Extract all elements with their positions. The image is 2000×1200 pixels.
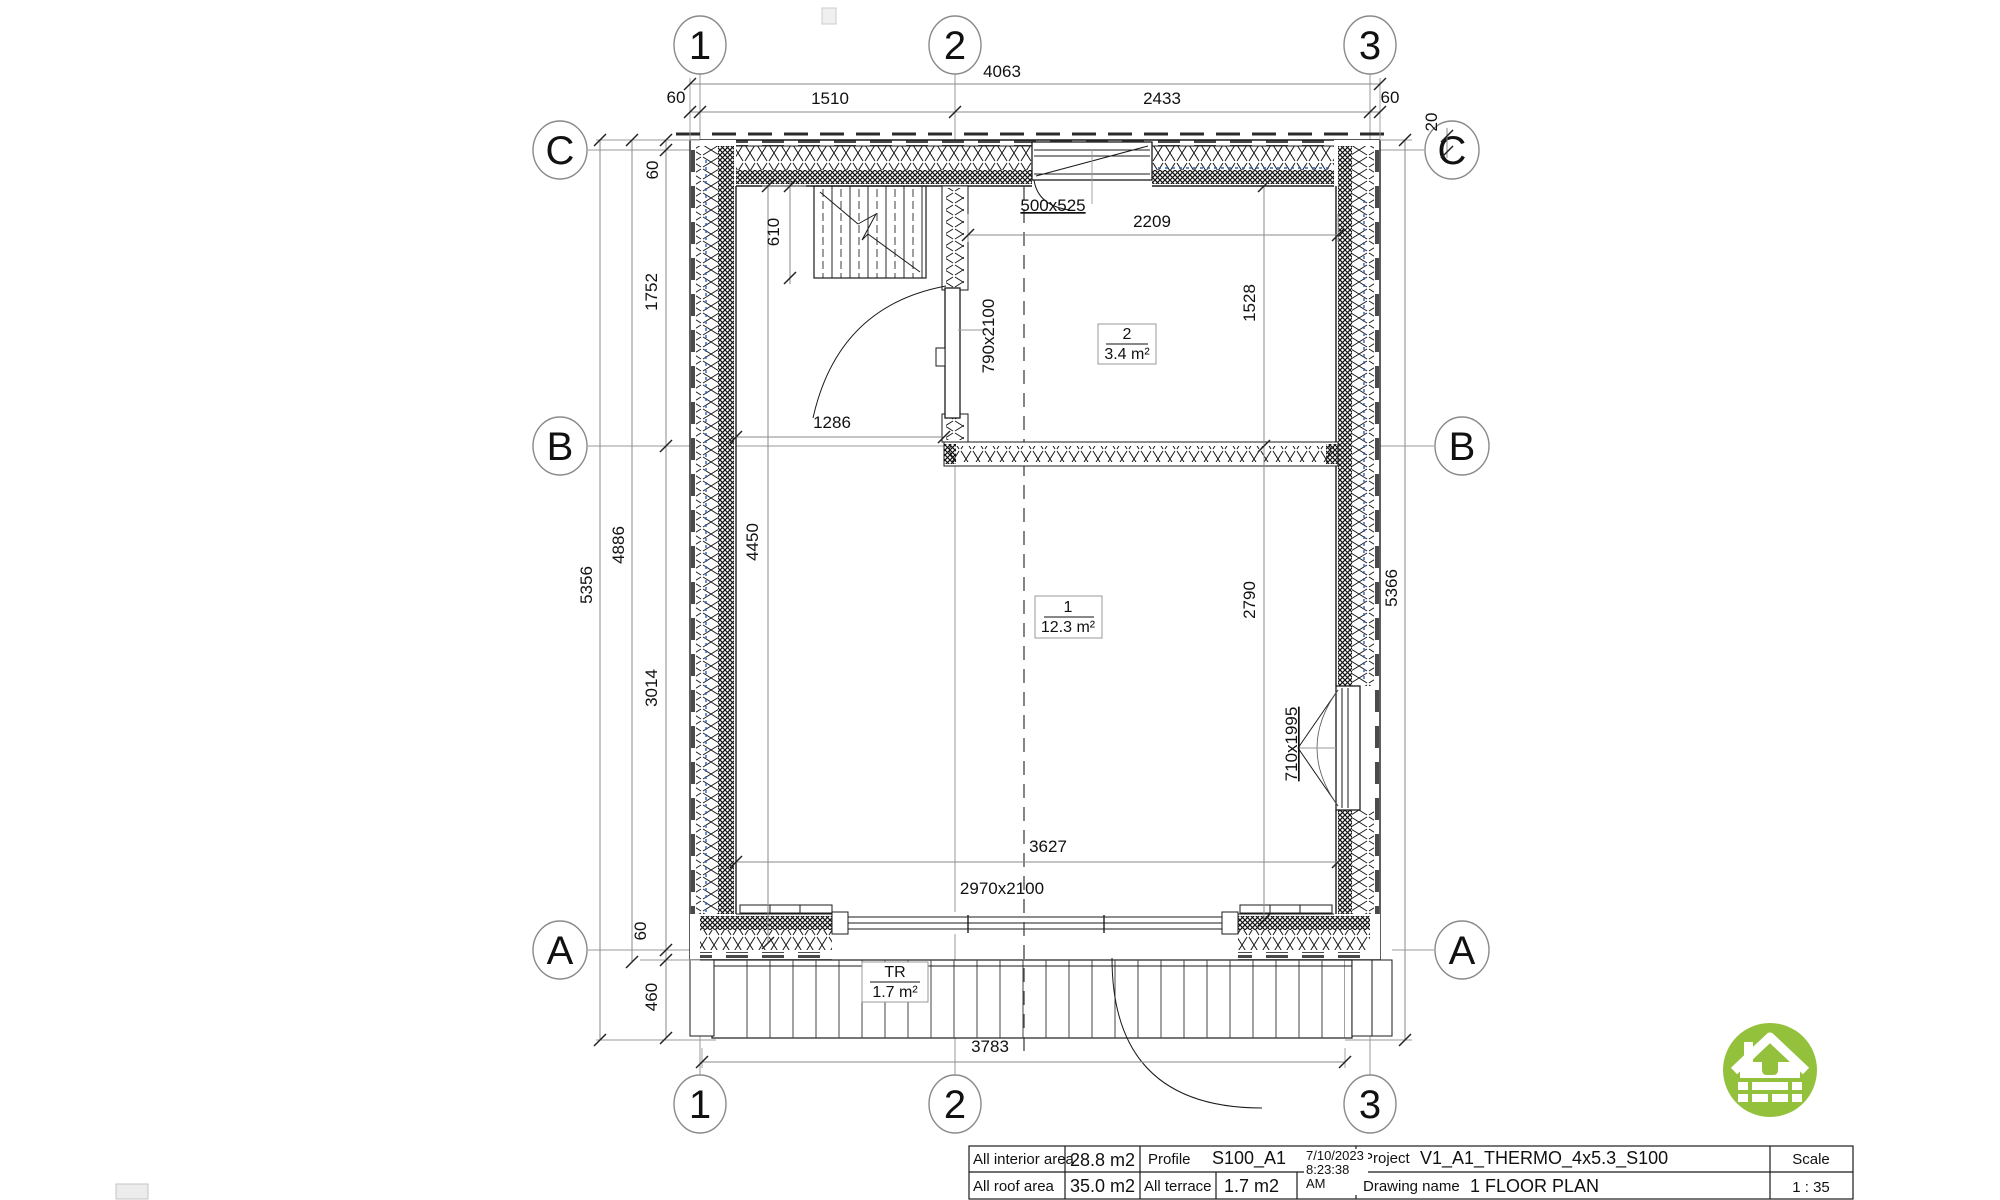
label-door-interior: 790x2100 — [979, 299, 998, 374]
grid-label: C — [1438, 129, 1467, 173]
dim-left-wall-height: 4886 — [609, 526, 628, 564]
grid-bubble-right-A: A — [1435, 921, 1489, 979]
dim-top-left-offset: 60 — [667, 88, 686, 107]
dim-top-span-1-2: 1510 — [811, 89, 849, 108]
grid-label: 3 — [1359, 1083, 1381, 1127]
terrace-deck — [690, 958, 1392, 1108]
title-interior-area-value: 28.8 m2 — [1070, 1150, 1135, 1170]
interior-door — [813, 286, 988, 418]
grid-bubble-top-2: 2 — [929, 16, 981, 74]
wall-left — [690, 140, 736, 960]
dim-terrace-width: 3783 — [971, 1037, 1009, 1056]
grid-bubble-bottom-2: 2 — [929, 1075, 981, 1133]
dim-top-span-2-3: 2433 — [1143, 89, 1181, 108]
terrace-post-left — [690, 960, 714, 1036]
title-profile-label: Profile — [1148, 1151, 1191, 1168]
stairs — [814, 186, 926, 278]
dim-room2-width: 2209 — [1133, 212, 1171, 231]
grid-bubble-bottom-3: 3 — [1344, 1075, 1396, 1133]
sliding-door — [832, 912, 1238, 934]
grid-label: A — [1449, 929, 1476, 973]
room-area: 3.4 m² — [1104, 346, 1150, 363]
dim-stair-width: 610 — [764, 218, 783, 246]
grid-bubble-left-A: A — [533, 921, 587, 979]
title-time: 8:23:38 — [1306, 1162, 1349, 1177]
dim-room2-height: 1528 — [1240, 284, 1259, 322]
window-right — [1298, 686, 1360, 810]
dim-top-right-offset: 60 — [1381, 88, 1400, 107]
grid-label: A — [547, 929, 574, 973]
grid-label: B — [547, 425, 574, 469]
title-scale-value: 1 : 35 — [1792, 1179, 1830, 1196]
grid-label: 2 — [944, 1083, 966, 1127]
title-drawing-name-value: 1 FLOOR PLAN — [1470, 1176, 1599, 1196]
grid-label: 3 — [1359, 24, 1381, 68]
interior-wall-horizontal — [944, 442, 1338, 466]
grid-label: B — [1449, 425, 1476, 469]
grid-bubble-left-C: C — [533, 121, 587, 179]
drawing-sheet: 1 2 3 1 2 3 C B — [0, 0, 2000, 1200]
title-date: 7/10/2023 — [1306, 1148, 1364, 1163]
label-window-top: 500x525 — [1020, 196, 1085, 215]
title-roof-area-label: All roof area — [973, 1178, 1055, 1195]
sheet-corner-mark — [116, 1184, 148, 1199]
title-terrace-value: 1.7 m2 — [1224, 1176, 1279, 1196]
wall-bottom — [690, 905, 1380, 960]
grid-bubble-top-1: 1 — [674, 16, 726, 74]
grid-bubble-top-3: 3 — [1344, 16, 1396, 74]
title-meridiem: AM — [1306, 1176, 1326, 1191]
dim-bottom-interior: 3627 — [1029, 837, 1067, 856]
room-area: 1.7 m² — [872, 984, 918, 1001]
room-area: 12.3 m² — [1041, 619, 1096, 636]
floor-plan-svg: 1 2 3 1 2 3 C B — [0, 0, 2000, 1200]
dim-top-overhang: 20 — [1422, 113, 1441, 132]
dim-left-c-to-b: 1752 — [642, 273, 661, 311]
title-profile-value: S100_A1 — [1212, 1148, 1286, 1169]
dim-left-b-to-a: 3014 — [642, 669, 661, 707]
title-roof-area-value: 35.0 m2 — [1070, 1176, 1135, 1196]
dim-terrace-depth: 460 — [642, 983, 661, 1011]
title-drawing-name-label: Drawing name — [1363, 1178, 1460, 1195]
grid-label: 1 — [689, 1083, 711, 1127]
dim-left-offset-top: 60 — [643, 161, 662, 180]
room-labels: 1 12.3 m² 2 3.4 m² TR 1.7 m² — [862, 324, 1156, 1002]
title-block: All interior area 28.8 m2 Profile S100_A… — [969, 1146, 1853, 1199]
dim-room1-height: 2790 — [1240, 581, 1259, 619]
title-project-value: V1_A1_THERMO_4x5.3_S100 — [1420, 1148, 1668, 1169]
grid-label: C — [546, 129, 575, 173]
grid-bubble-bottom-1: 1 — [674, 1075, 726, 1133]
grid-bubble-left-B: B — [533, 417, 587, 475]
dim-interior-height: 4450 — [743, 523, 762, 561]
label-door-sliding: 2970x2100 — [960, 879, 1044, 898]
company-logo — [1723, 1023, 1817, 1117]
dim-right-overall: 5366 — [1382, 569, 1401, 607]
title-interior-area-label: All interior area — [973, 1151, 1075, 1168]
sheet-top-mark — [822, 8, 836, 24]
room-number: TR — [884, 964, 905, 981]
dim-left-overall: 5356 — [577, 566, 596, 604]
label-window-right: 710x1995 — [1282, 707, 1301, 782]
room-number: 1 — [1064, 599, 1073, 616]
title-scale-label: Scale — [1792, 1151, 1830, 1168]
door-sill — [740, 905, 1332, 913]
dim-left-offset-bottom: 60 — [631, 922, 650, 941]
title-terrace-label: All terrace — [1144, 1178, 1212, 1195]
dim-door-wall-span: 1286 — [813, 413, 851, 432]
room-number: 2 — [1123, 326, 1132, 343]
wall-right — [1334, 140, 1380, 960]
grid-label: 1 — [689, 24, 711, 68]
grid-label: 2 — [944, 24, 966, 68]
title-project-label: Project — [1363, 1150, 1411, 1167]
room-label-1: 1 12.3 m² — [1035, 596, 1102, 638]
room-label-2: 2 3.4 m² — [1098, 324, 1156, 364]
grid-bubble-right-B: B — [1435, 417, 1489, 475]
room-label-terrace: TR 1.7 m² — [862, 962, 928, 1002]
dim-top-overall: 4063 — [983, 62, 1021, 81]
